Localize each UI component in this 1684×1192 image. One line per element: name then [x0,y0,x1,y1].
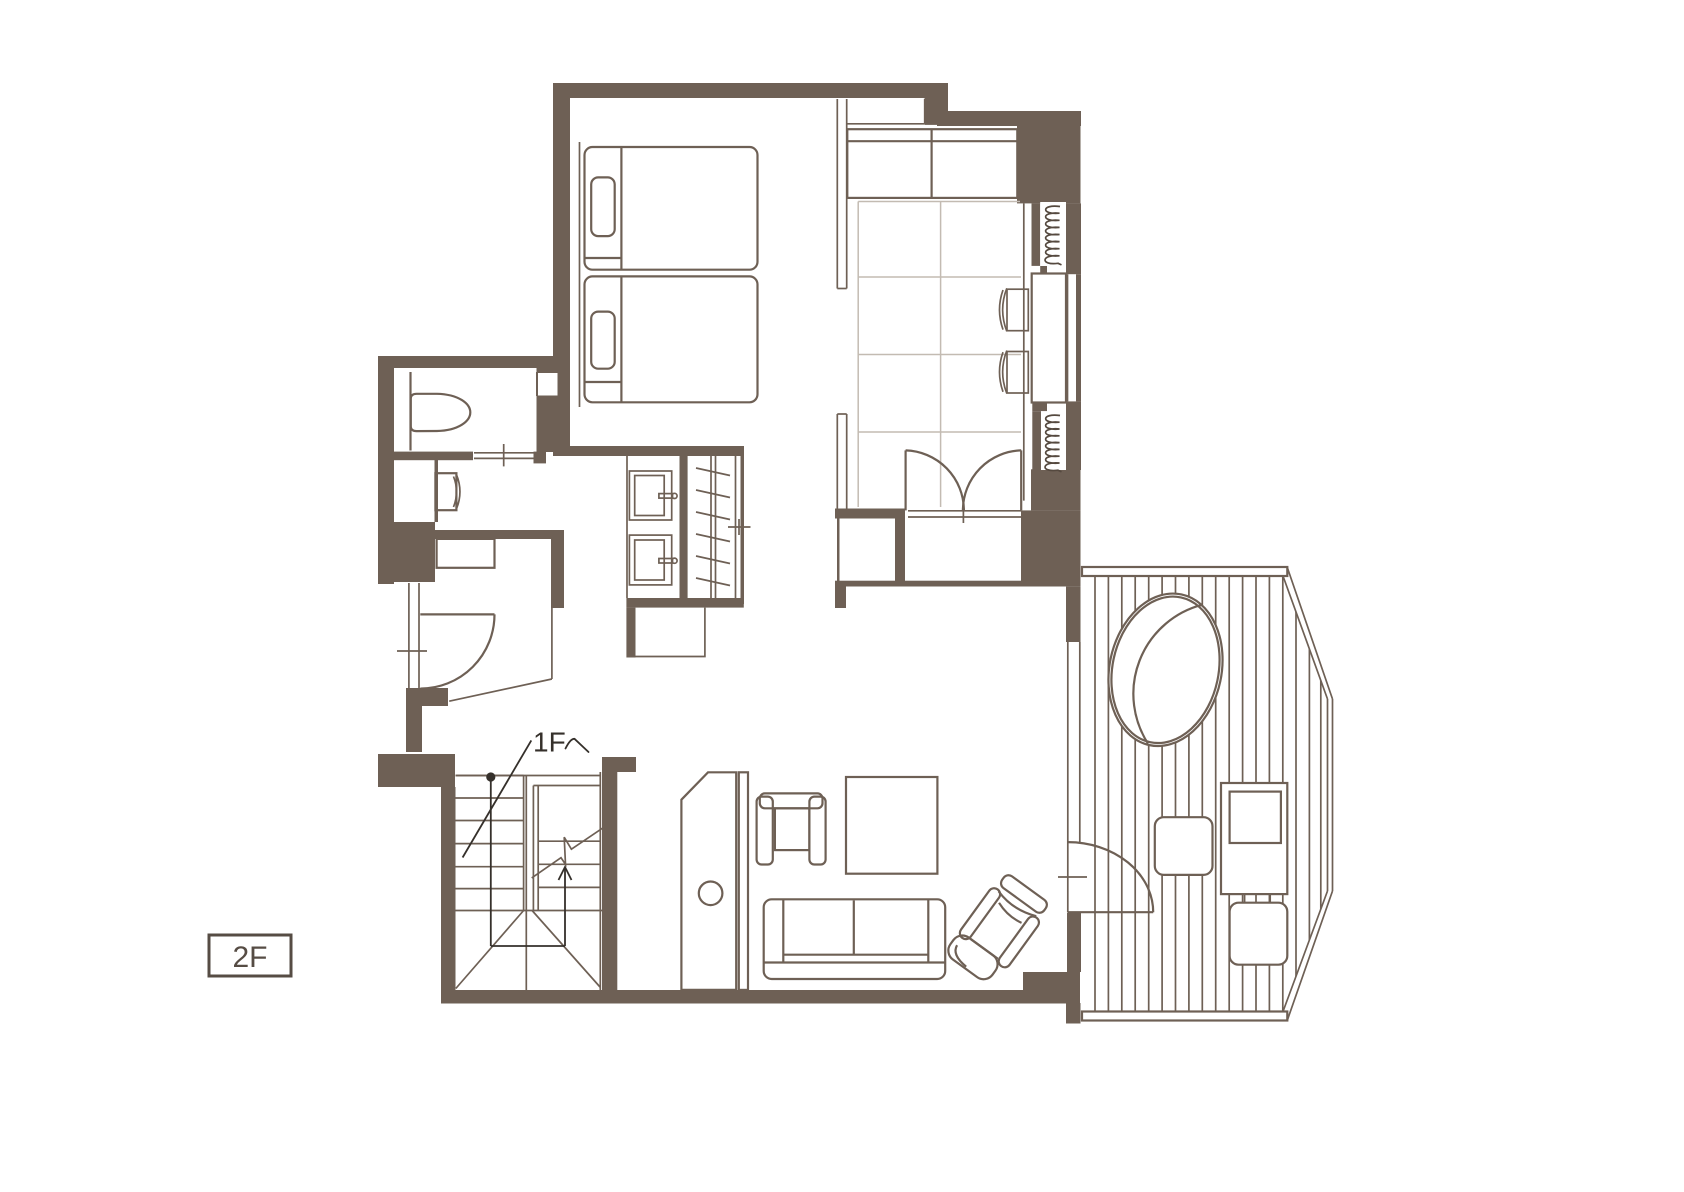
svg-text:1F: 1F [533,727,566,758]
svg-text:2F: 2F [232,941,267,974]
